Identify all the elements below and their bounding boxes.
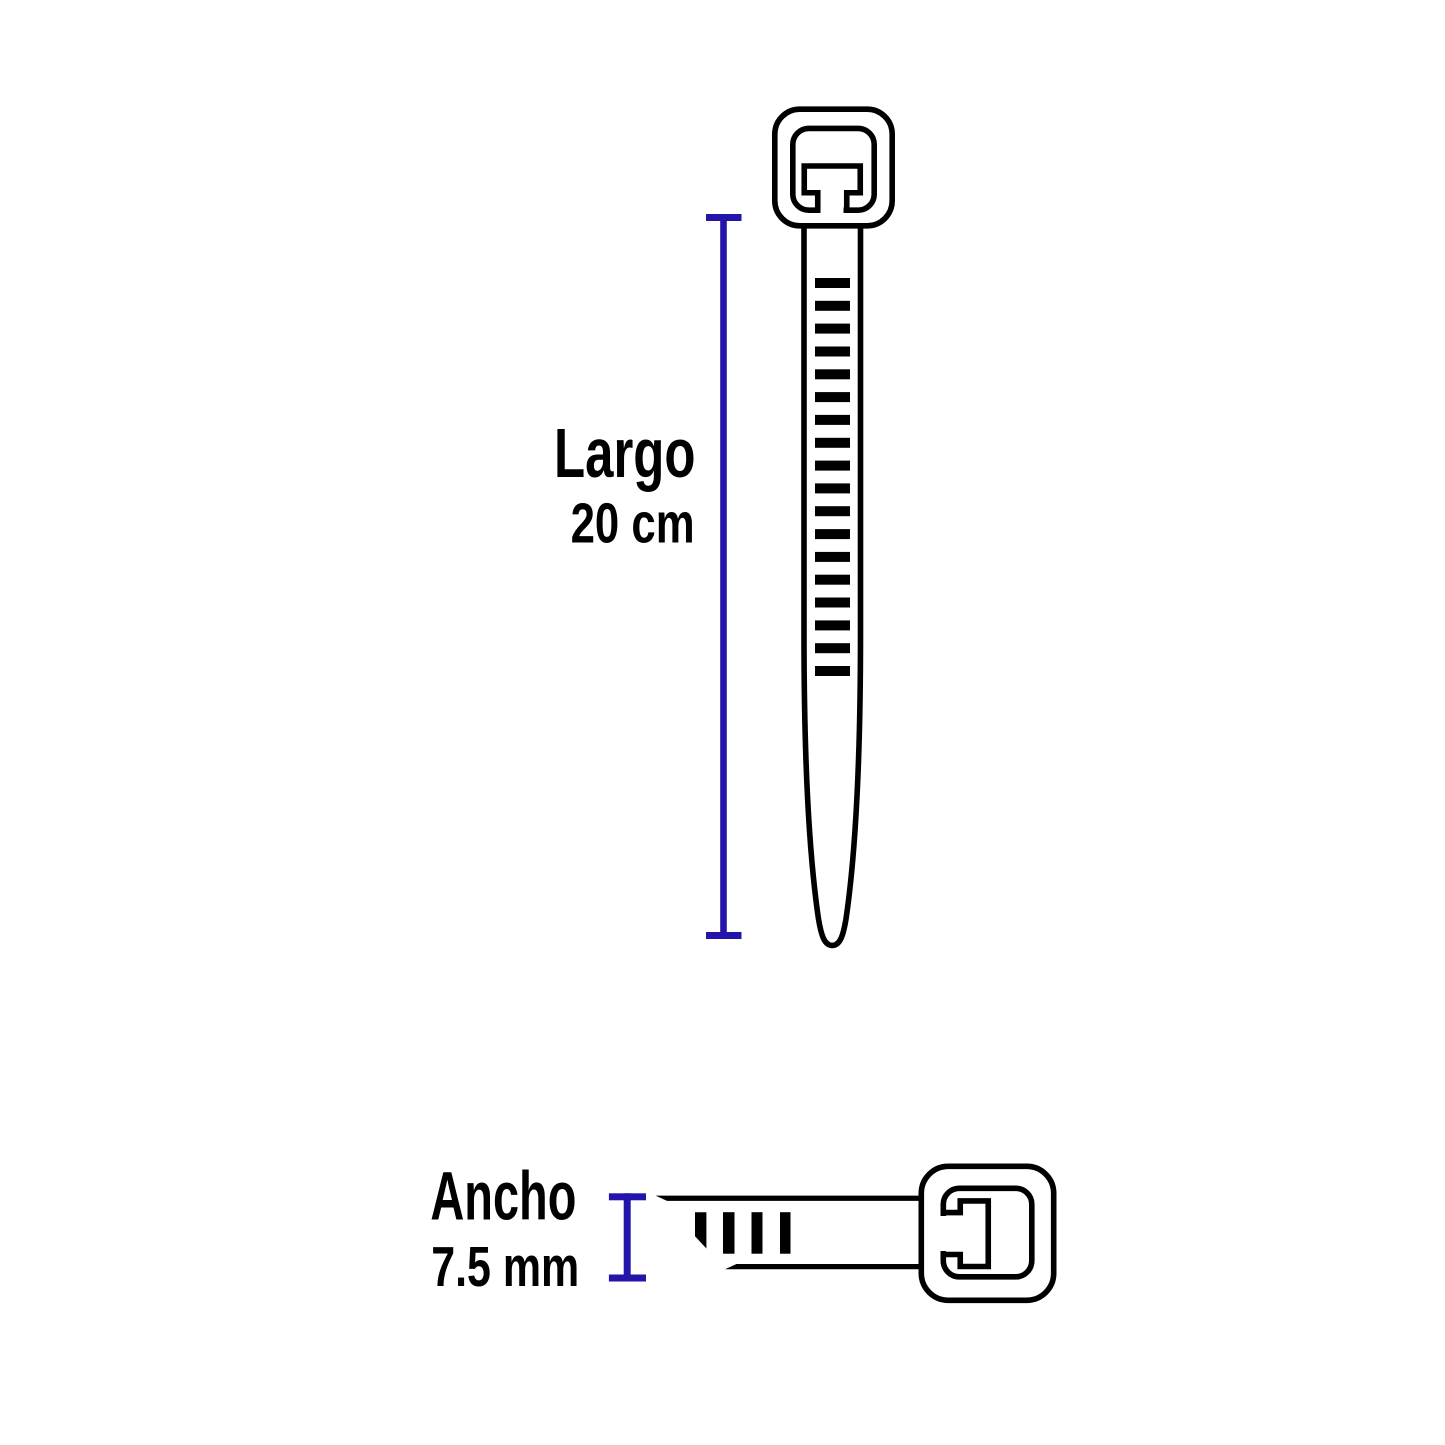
- svg-text:20 cm: 20 cm: [571, 492, 695, 555]
- svg-text:Largo: Largo: [554, 414, 696, 492]
- svg-text:7.5 mm: 7.5 mm: [431, 1235, 579, 1299]
- svg-text:Ancho: Ancho: [430, 1157, 576, 1234]
